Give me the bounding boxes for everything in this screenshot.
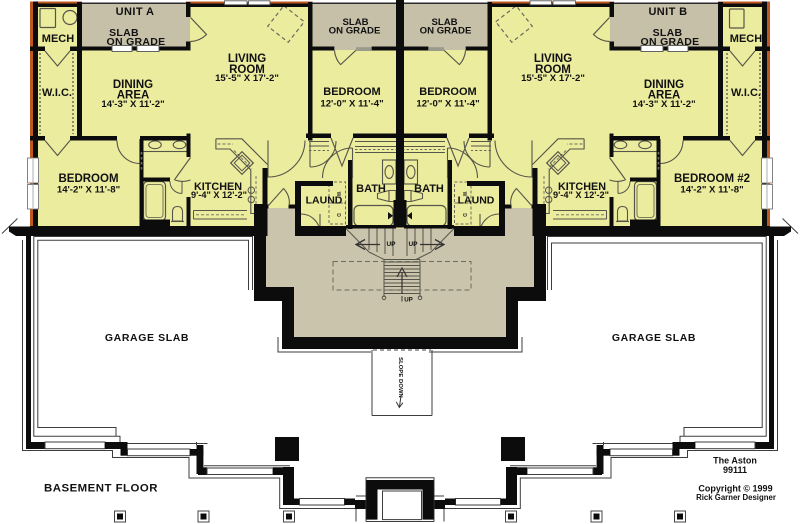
svg-text:LAUND: LAUND [458, 195, 495, 207]
svg-text:BATH: BATH [356, 183, 386, 195]
svg-text:UNIT A: UNIT A [116, 6, 155, 18]
svg-text:BEDROOM: BEDROOM [419, 86, 476, 98]
svg-text:Rick Garner Designer: Rick Garner Designer [696, 493, 776, 502]
svg-text:12'-0" X 11'-4": 12'-0" X 11'-4" [416, 99, 479, 110]
svg-text:LAUND: LAUND [306, 195, 343, 207]
svg-text:MECH: MECH [42, 33, 74, 45]
svg-text:SLOPE DOWN: SLOPE DOWN [397, 357, 403, 398]
svg-text:9'-4" X 12'-2": 9'-4" X 12'-2" [191, 190, 247, 200]
svg-text:15'-5" X 17'-2": 15'-5" X 17'-2" [521, 73, 585, 84]
svg-text:15'-5" X 17'-2": 15'-5" X 17'-2" [215, 73, 279, 84]
svg-text:ON GRADE: ON GRADE [329, 26, 381, 37]
svg-text:14'-3" X 11'-2": 14'-3" X 11'-2" [101, 99, 164, 110]
svg-text:UP: UP [386, 241, 396, 248]
svg-text:GARAGE SLAB: GARAGE SLAB [105, 332, 189, 344]
svg-text:14'-3" X 11'-2": 14'-3" X 11'-2" [632, 99, 695, 110]
svg-text:BASEMENT FLOOR: BASEMENT FLOOR [44, 483, 158, 495]
svg-text:ON GRADE: ON GRADE [420, 26, 472, 37]
svg-text:D: D [335, 213, 341, 217]
svg-text:12'-0" X 11'-4": 12'-0" X 11'-4" [320, 99, 383, 110]
svg-text:D: D [461, 213, 467, 217]
svg-text:BEDROOM #2: BEDROOM #2 [674, 173, 750, 185]
svg-text:BATH: BATH [414, 183, 444, 195]
svg-text:W.I.C.: W.I.C. [731, 87, 761, 99]
svg-text:MECH: MECH [730, 33, 762, 45]
svg-text:UNIT B: UNIT B [648, 6, 687, 18]
svg-text:99111: 99111 [723, 465, 747, 475]
svg-text:UP: UP [404, 297, 413, 304]
svg-text:ON GRADE: ON GRADE [107, 36, 166, 48]
svg-text:GARAGE SLAB: GARAGE SLAB [612, 332, 696, 344]
svg-text:W.I.C.: W.I.C. [42, 87, 72, 99]
svg-text:BEDROOM: BEDROOM [58, 173, 118, 185]
svg-text:14'-2" X 11'-8": 14'-2" X 11'-8" [57, 185, 120, 196]
svg-text:14'-2" X 11'-8": 14'-2" X 11'-8" [680, 185, 743, 196]
svg-text:ON GRADE: ON GRADE [641, 36, 700, 48]
svg-text:UP: UP [408, 241, 418, 248]
svg-text:The Aston: The Aston [713, 456, 757, 466]
svg-text:Copyright © 1999: Copyright © 1999 [698, 484, 772, 494]
svg-text:BEDROOM: BEDROOM [323, 86, 380, 98]
svg-text:9'-4" X 12'-2": 9'-4" X 12'-2" [553, 190, 609, 200]
